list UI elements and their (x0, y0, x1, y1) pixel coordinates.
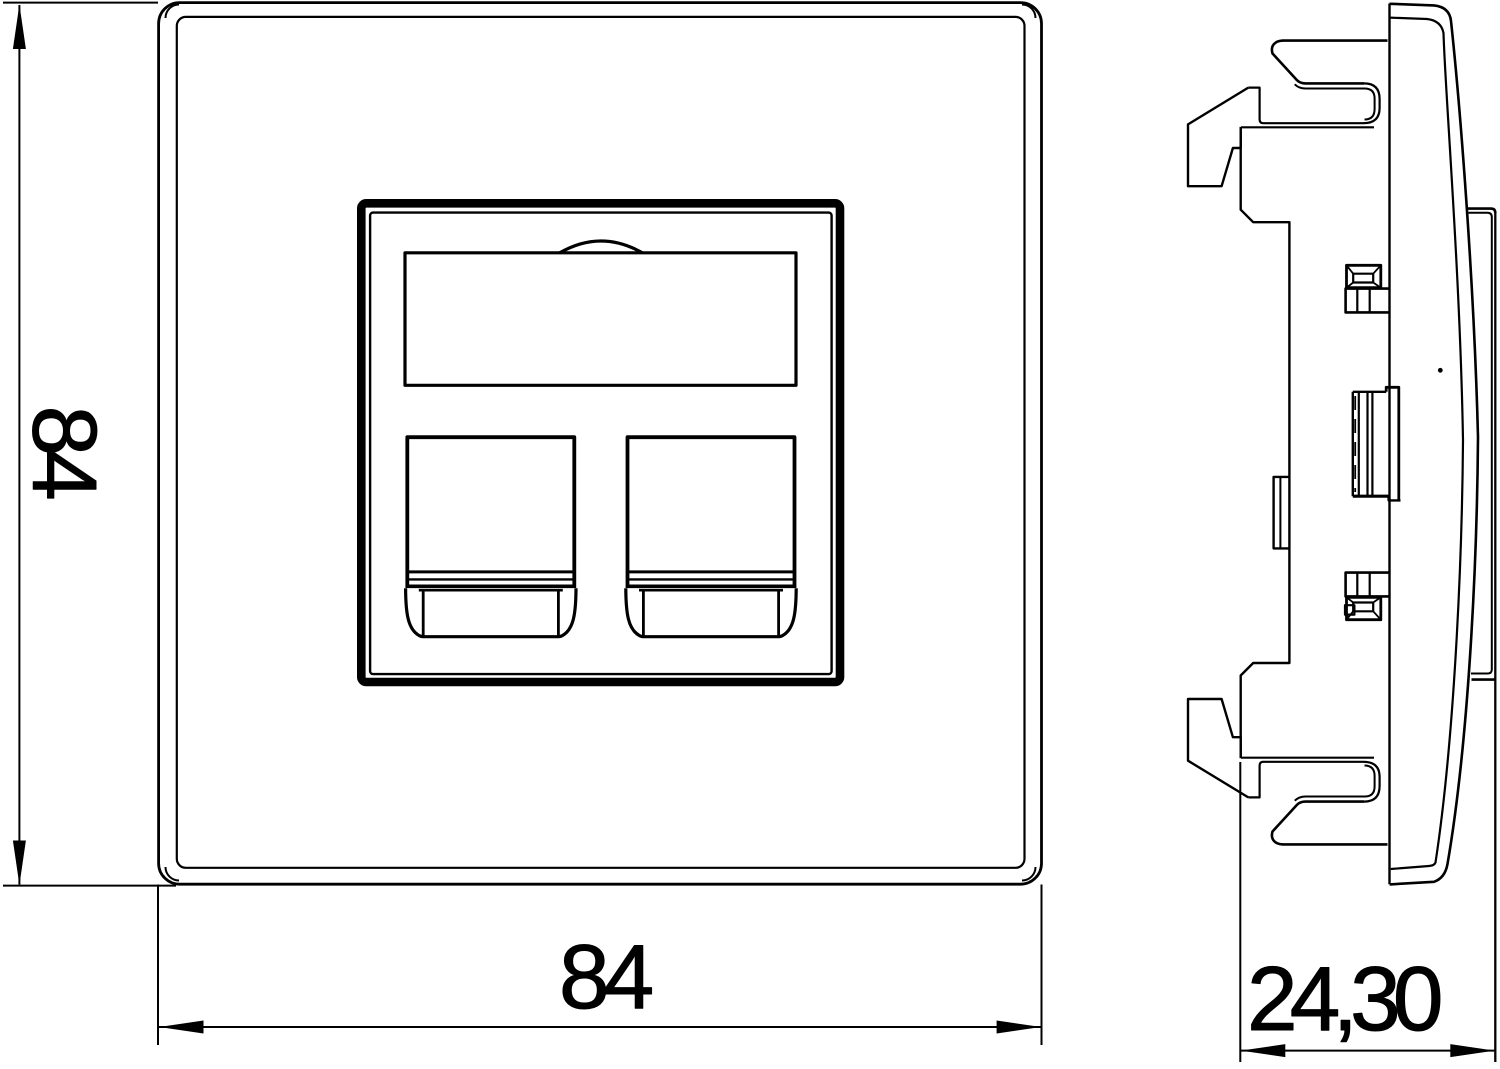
svg-text:24,30: 24,30 (1247, 949, 1441, 1050)
svg-text:84: 84 (14, 406, 115, 499)
svg-text:84: 84 (559, 927, 652, 1028)
